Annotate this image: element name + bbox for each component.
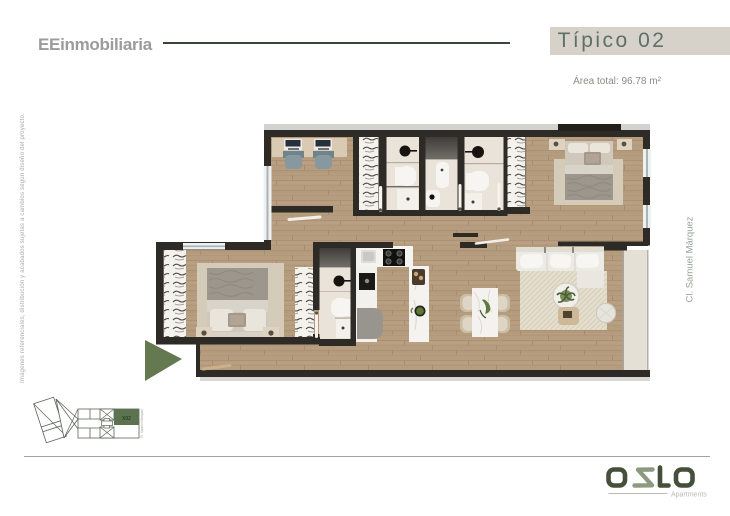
svg-text:Cl. Samuel Marquez: Cl. Samuel Marquez <box>140 409 144 438</box>
svg-text:Apartments: Apartments <box>671 492 707 499</box>
svg-text:X02: X02 <box>122 416 131 422</box>
